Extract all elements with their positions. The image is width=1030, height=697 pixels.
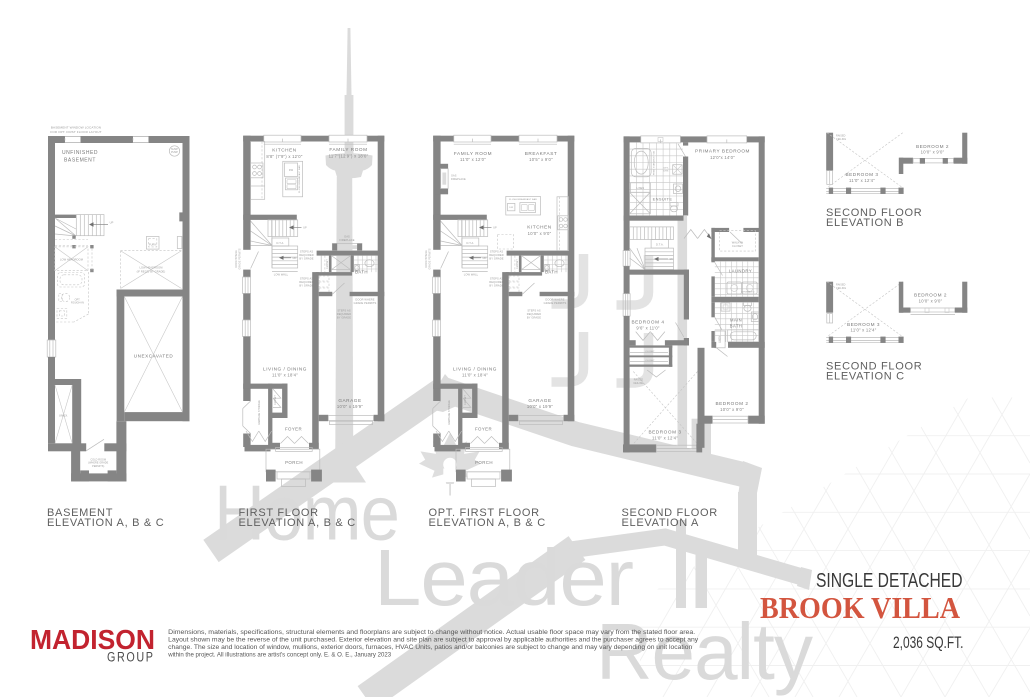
svg-text:LOW HEADROOM: LOW HEADROOM xyxy=(139,266,162,270)
svg-text:UNEX.: UNEX. xyxy=(59,414,68,418)
svg-text:CLOSET: CLOSET xyxy=(327,259,329,269)
svg-text:BY GRADE: BY GRADE xyxy=(299,284,313,288)
svg-text:PRIMARY BEDROOM: PRIMARY BEDROOM xyxy=(695,148,750,153)
svg-text:ELEVATION A, B & C: ELEVATION A, B & C xyxy=(47,517,164,529)
svg-text:10'0" x 9'0": 10'0" x 9'0" xyxy=(919,298,943,303)
svg-text:D.T.A.: D.T.A. xyxy=(656,242,664,246)
svg-text:2,036 SQ.FT.: 2,036 SQ.FT. xyxy=(893,633,964,652)
svg-text:KITCHEN: KITCHEN xyxy=(527,225,551,230)
svg-text:CLOSET: CLOSET xyxy=(645,351,655,353)
svg-text:FOYER: FOYER xyxy=(285,427,302,432)
svg-text:BEDROOM 4: BEDROOM 4 xyxy=(631,319,664,324)
svg-text:WALK-IN: WALK-IN xyxy=(732,241,743,245)
svg-text:FAMILY ROOM: FAMILY ROOM xyxy=(454,151,492,156)
svg-text:UNFINISHED: UNFINISHED xyxy=(62,150,98,156)
svg-text:CLOSET: CLOSET xyxy=(645,360,655,362)
svg-text:LOW WALL: LOW WALL xyxy=(274,273,289,277)
svg-text:CEILING: CEILING xyxy=(633,382,643,385)
svg-text:DW: DW xyxy=(289,169,294,172)
svg-text:11'7"(12'9") x 18'0": 11'7"(12'9") x 18'0" xyxy=(329,154,369,159)
svg-text:ELEVATION A, B & C: ELEVATION A, B & C xyxy=(239,517,356,529)
svg-text:11'0" x 12'0": 11'0" x 12'0" xyxy=(460,157,486,162)
svg-text:Leader: Leader xyxy=(374,533,633,622)
svg-text:10'5" x 9'0": 10'5" x 9'0" xyxy=(529,157,553,162)
svg-text:CLOSET: CLOSET xyxy=(732,244,743,248)
svg-text:LINEN: LINEN xyxy=(720,336,722,344)
svg-text:KITCHEN: KITCHEN xyxy=(272,148,296,153)
svg-text:BY GRADE: BY GRADE xyxy=(337,315,351,319)
svg-text:REQUIRED: REQUIRED xyxy=(299,253,314,257)
svg-text:LINEN: LINEN xyxy=(637,187,645,190)
svg-text:FURN: FURN xyxy=(149,244,156,247)
svg-text:BATH: BATH xyxy=(730,323,742,328)
svg-text:DN: DN xyxy=(670,258,674,261)
svg-text:FIREPLACE: FIREPLACE xyxy=(339,238,354,242)
svg-text:PORCH: PORCH xyxy=(285,460,303,465)
svg-text:BEDROOM 2: BEDROOM 2 xyxy=(916,144,949,149)
svg-text:UPGRADED: UPGRADED xyxy=(741,291,755,294)
svg-text:LOW HEADROOM: LOW HEADROOM xyxy=(60,257,83,261)
svg-text:change. The size and location: change. The size and location of window,… xyxy=(168,644,692,651)
svg-text:GRADE PERMITS: GRADE PERMITS xyxy=(239,248,242,269)
svg-text:10'0" x 9'0": 10'0" x 9'0" xyxy=(921,150,945,155)
svg-text:11'0" x 12'4": 11'0" x 12'4" xyxy=(851,328,877,333)
svg-text:CLOSET: CLOSET xyxy=(275,395,277,405)
svg-text:BASEMENT: BASEMENT xyxy=(64,158,96,164)
svg-text:PUMP: PUMP xyxy=(171,152,178,154)
svg-text:ELEVATION C: ELEVATION C xyxy=(826,371,905,383)
svg-text:BEDROOM 3: BEDROOM 3 xyxy=(845,172,878,177)
svg-text:FLUSH BREAKFAST BAR: FLUSH BREAKFAST BAR xyxy=(509,198,537,201)
svg-text:REQUIRED: REQUIRED xyxy=(299,280,314,284)
svg-text:FOR OPT. FIRST FLOOR LAYOUT: FOR OPT. FIRST FLOOR LAYOUT xyxy=(50,130,101,134)
svg-text:10'0" x 19'9": 10'0" x 19'9" xyxy=(337,404,363,409)
svg-text:SUMP: SUMP xyxy=(171,149,178,151)
svg-text:GAS: GAS xyxy=(344,235,350,239)
svg-text:BREAKFAST: BREAKFAST xyxy=(525,151,558,156)
svg-text:(IF REQ'D BY GRADE): (IF REQ'D BY GRADE) xyxy=(137,269,166,273)
svg-text:9'6" x 11'0": 9'6" x 11'0" xyxy=(636,326,660,331)
svg-text:FIREPLACE: FIREPLACE xyxy=(451,178,466,181)
svg-text:BY GRADE: BY GRADE xyxy=(299,256,313,260)
svg-text:11'0" x 12'4": 11'0" x 12'4" xyxy=(849,178,875,183)
svg-text:GARAGE: GARAGE xyxy=(338,398,361,403)
svg-text:FREE STANDING TUB: FREE STANDING TUB xyxy=(653,150,656,175)
svg-text:ELEVATION A: ELEVATION A xyxy=(622,517,700,529)
svg-text:GROUP: GROUP xyxy=(107,650,155,665)
svg-text:FAMILY ROOM: FAMILY ROOM xyxy=(329,147,367,152)
svg-text:ENSUITE: ENSUITE xyxy=(653,196,673,201)
svg-text:BATH: BATH xyxy=(355,269,368,274)
svg-text:ROUGH-IN: ROUGH-IN xyxy=(71,302,84,305)
svg-text:BROOK VILLA: BROOK VILLA xyxy=(760,591,960,625)
svg-text:LAUNDRY: LAUNDRY xyxy=(729,269,752,274)
svg-text:within the project. All illust: within the project. All illustrations ar… xyxy=(167,651,391,658)
svg-text:LIVING / DINING: LIVING / DINING xyxy=(263,367,307,372)
svg-text:UP: UP xyxy=(110,221,114,225)
svg-text:GRADE PERMITS: GRADE PERMITS xyxy=(354,301,377,305)
svg-text:DOOR WHERE: DOOR WHERE xyxy=(355,297,374,301)
svg-text:STEPS AS: STEPS AS xyxy=(300,277,314,281)
svg-text:11'0" x 12'4": 11'0" x 12'4" xyxy=(652,436,678,441)
svg-text:BEDROOM 2: BEDROOM 2 xyxy=(715,401,748,406)
svg-text:D.T.A.: D.T.A. xyxy=(276,241,284,245)
svg-text:STEPS AS: STEPS AS xyxy=(337,308,351,312)
svg-text:BEDROOM 2: BEDROOM 2 xyxy=(914,293,947,298)
svg-text:Dimensions, materials, specifi: Dimensions, materials, specifications, s… xyxy=(168,629,695,636)
svg-text:12'0"x 14'0": 12'0"x 14'0" xyxy=(710,155,735,160)
svg-text:10'0" x 9'0": 10'0" x 9'0" xyxy=(720,407,744,412)
svg-text:OPT.: OPT. xyxy=(663,168,669,170)
svg-text:11'0" x 18'4": 11'0" x 18'4" xyxy=(272,373,298,378)
svg-text:UNEXCAVATED: UNEXCAVATED xyxy=(134,354,174,359)
svg-text:ELEVATION A, B & C: ELEVATION A, B & C xyxy=(429,517,546,529)
svg-text:GARBAGE STORAGE: GARBAGE STORAGE xyxy=(258,400,261,425)
svg-text:SINGLE DETACHED: SINGLE DETACHED xyxy=(816,569,963,592)
svg-text:REQUIRED: REQUIRED xyxy=(337,312,352,316)
svg-text:FLUSH BREAKFAST BAR: FLUSH BREAKFAST BAR xyxy=(298,165,301,193)
svg-text:STEPS AS: STEPS AS xyxy=(300,249,314,253)
svg-text:Layout shown may be the revers: Layout shown may be the reverse of the u… xyxy=(168,636,699,643)
svg-text:MAIN: MAIN xyxy=(730,318,742,323)
svg-text:ELEVATION B: ELEVATION B xyxy=(826,217,904,229)
svg-text:PERMITS): PERMITS) xyxy=(92,465,104,468)
svg-text:DRS: DRS xyxy=(664,170,669,172)
svg-text:10'0" x 9'0": 10'0" x 9'0" xyxy=(528,231,552,236)
svg-text:UP: UP xyxy=(303,227,307,230)
svg-text:BEDROOM 3: BEDROOM 3 xyxy=(648,429,681,434)
svg-text:8'8" (7'9") x 12'0": 8'8" (7'9") x 12'0" xyxy=(266,154,303,159)
svg-text:DN: DN xyxy=(293,257,297,260)
svg-text:BEDROOM 3: BEDROOM 3 xyxy=(847,322,880,327)
